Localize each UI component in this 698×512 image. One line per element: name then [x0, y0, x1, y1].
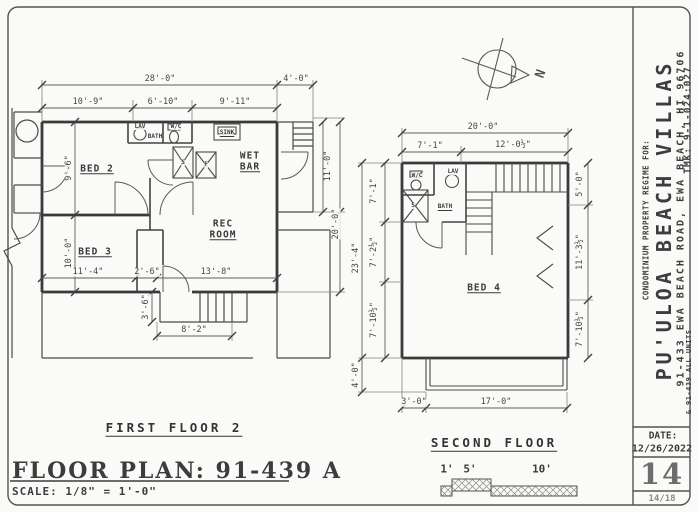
dim-ff-bed2-depth: 9'-6": [65, 155, 74, 181]
dim-sf-left-a: 7'-1": [370, 178, 379, 204]
room-label-rec: REC: [213, 219, 233, 229]
titleblock-tmk: TMK: 9-1-024:027: [683, 66, 694, 174]
titleblock-regime-line: CONDOMINIUM PROPERTY REGIME FOR:: [642, 140, 651, 301]
titleblock-project-name: PU'ULOA BEACH VILLAS: [652, 60, 676, 381]
dim-ff-top-b: 6'-10": [148, 98, 179, 107]
first-floor-doors: [14, 152, 308, 292]
label-ff-lav: LAV: [135, 124, 146, 130]
label-sf-wc: W/C: [412, 173, 423, 179]
dim-sf-right-c: 7'-10½": [576, 311, 585, 347]
dim-sf-bottom-a: 3'-0": [401, 398, 427, 407]
room-label-bed2: BED 2: [80, 164, 114, 174]
caption-second-floor: SECOND FLOOR: [431, 437, 557, 450]
dim-ff-top-a: 10'-9": [73, 98, 104, 107]
label-sf-shower: S: [411, 203, 415, 209]
dim-ff-top-c: 9'-11": [220, 98, 251, 107]
north-arrow-icon: [462, 38, 529, 100]
dim-ff-stoop-depth: 3'-6": [142, 294, 151, 320]
graphic-scale-bar: [441, 479, 577, 496]
label-ff-bath: BATH: [148, 134, 162, 140]
dimension-ticks: [38, 81, 592, 412]
plan-title: FLOOR PLAN: 91-439 A: [12, 458, 342, 484]
room-label-bar: BAR: [240, 162, 260, 172]
dim-sf-bottom-b: 17'-0": [481, 398, 512, 407]
dim-sf-overall-depth: 23'-4": [352, 243, 361, 274]
dim-sf-right-a: 5'-0": [576, 171, 585, 197]
dim-ff-right-overall: 20'-0": [332, 209, 341, 240]
titleblock-date-label: DATE:: [649, 431, 678, 442]
label-sf-lav: LAV: [448, 169, 459, 175]
dim-sf-right-b: 11'-3½": [576, 234, 585, 270]
second-floor-stairs: [466, 163, 568, 255]
room-label-rec-room: ROOM: [210, 230, 237, 240]
titleblock-date-value: 12/26/2022: [632, 444, 692, 455]
titleblock-page-fraction: 14/18: [648, 494, 675, 504]
scale-bar-tick-1: 1': [440, 464, 453, 475]
scale-note: SCALE: 1/8" = 1'-0": [12, 485, 157, 498]
scale-bar-tick-10: 10': [532, 464, 552, 475]
dim-ff-bottom-b: 2'-6": [134, 268, 160, 277]
dim-ff-bed3-depth: 10'-0": [65, 238, 74, 269]
dim-ff-right-upper: 11'-0": [324, 151, 333, 182]
label-sf-bath: BATH: [438, 204, 452, 210]
dim-sf-top-a: 7'-1": [417, 142, 443, 151]
dim-sf-deck-depth: 4'-0": [352, 362, 361, 388]
dim-ff-stoop-width: 8'-2": [181, 326, 207, 335]
dim-ff-bottom-c: 13'-8": [201, 268, 232, 277]
room-label-wet: WET: [240, 151, 260, 161]
dim-sf-overall-width: 20'-0": [468, 123, 499, 132]
dimension-lines: [42, 85, 588, 408]
extension-lines: [42, 80, 593, 413]
label-ff-sink: SINK: [220, 130, 234, 136]
caption-first-floor: FIRST FLOOR 2: [106, 422, 243, 435]
dim-sf-top-b: 12'-0½": [495, 141, 531, 150]
label-ff-wc: W/C: [171, 124, 182, 130]
scale-bar-tick-5: 5': [463, 464, 476, 475]
dim-ff-overall-width: 28'-0": [145, 75, 176, 84]
dim-ff-bottom-a: 11'-4": [73, 268, 104, 277]
room-label-bed4: BED 4: [467, 283, 501, 293]
titleblock-sheet-number: 14: [640, 457, 684, 491]
label-ff-closet-f: F: [204, 162, 208, 168]
first-floor-site-lines: [4, 108, 330, 358]
titleblock-units-line: & 91-439 ALL UNITS: [685, 330, 693, 415]
dim-sf-left-c: 7'-10½": [370, 302, 379, 338]
dim-ff-right-ext: 4'-0": [283, 75, 309, 84]
label-ff-shower: S: [181, 160, 185, 166]
floor-plan-sheet: 28'-0" 4'-0" 10'-9" 6'-10" 9'-11" 9'-6" …: [0, 0, 698, 512]
room-label-bed3: BED 3: [78, 247, 112, 257]
dim-sf-left-b: 7'-2½": [370, 237, 379, 268]
